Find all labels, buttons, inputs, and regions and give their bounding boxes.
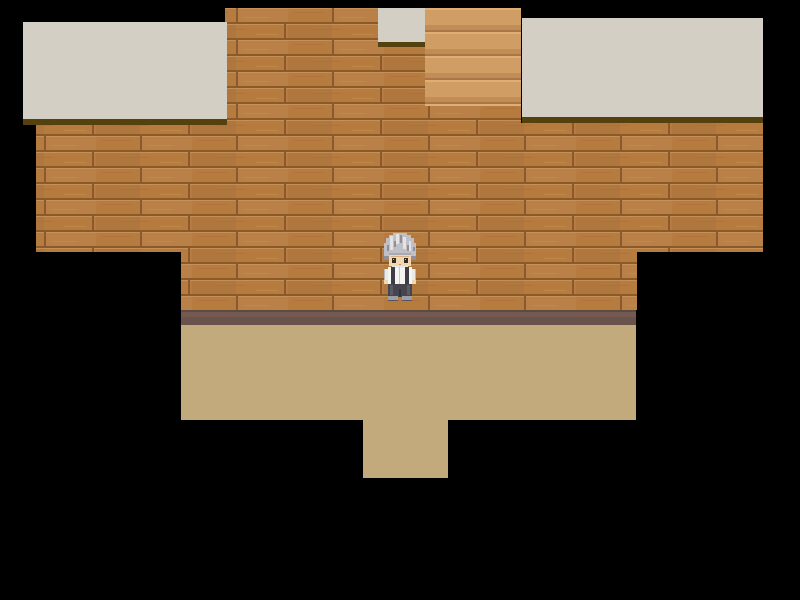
ceiling-block-shadow [378,42,425,47]
baseboard [181,310,636,325]
staircase[interactable] [425,8,521,106]
wall-left-inner [181,125,225,310]
wall-right [637,123,763,252]
player-character [382,233,418,302]
ceiling-block-top [378,8,425,42]
ceiling-shadow-right [522,117,763,123]
floor-main[interactable] [181,325,636,420]
ceiling-shadow-left [23,119,227,125]
wall-left [36,125,181,252]
wall-right-inner [521,123,637,310]
ceiling-ledge-right [522,18,763,117]
floor-doorway[interactable] [363,420,448,478]
game-viewport[interactable] [0,0,800,600]
player-sprite [382,233,418,302]
ceiling-ledge-left [23,22,227,119]
